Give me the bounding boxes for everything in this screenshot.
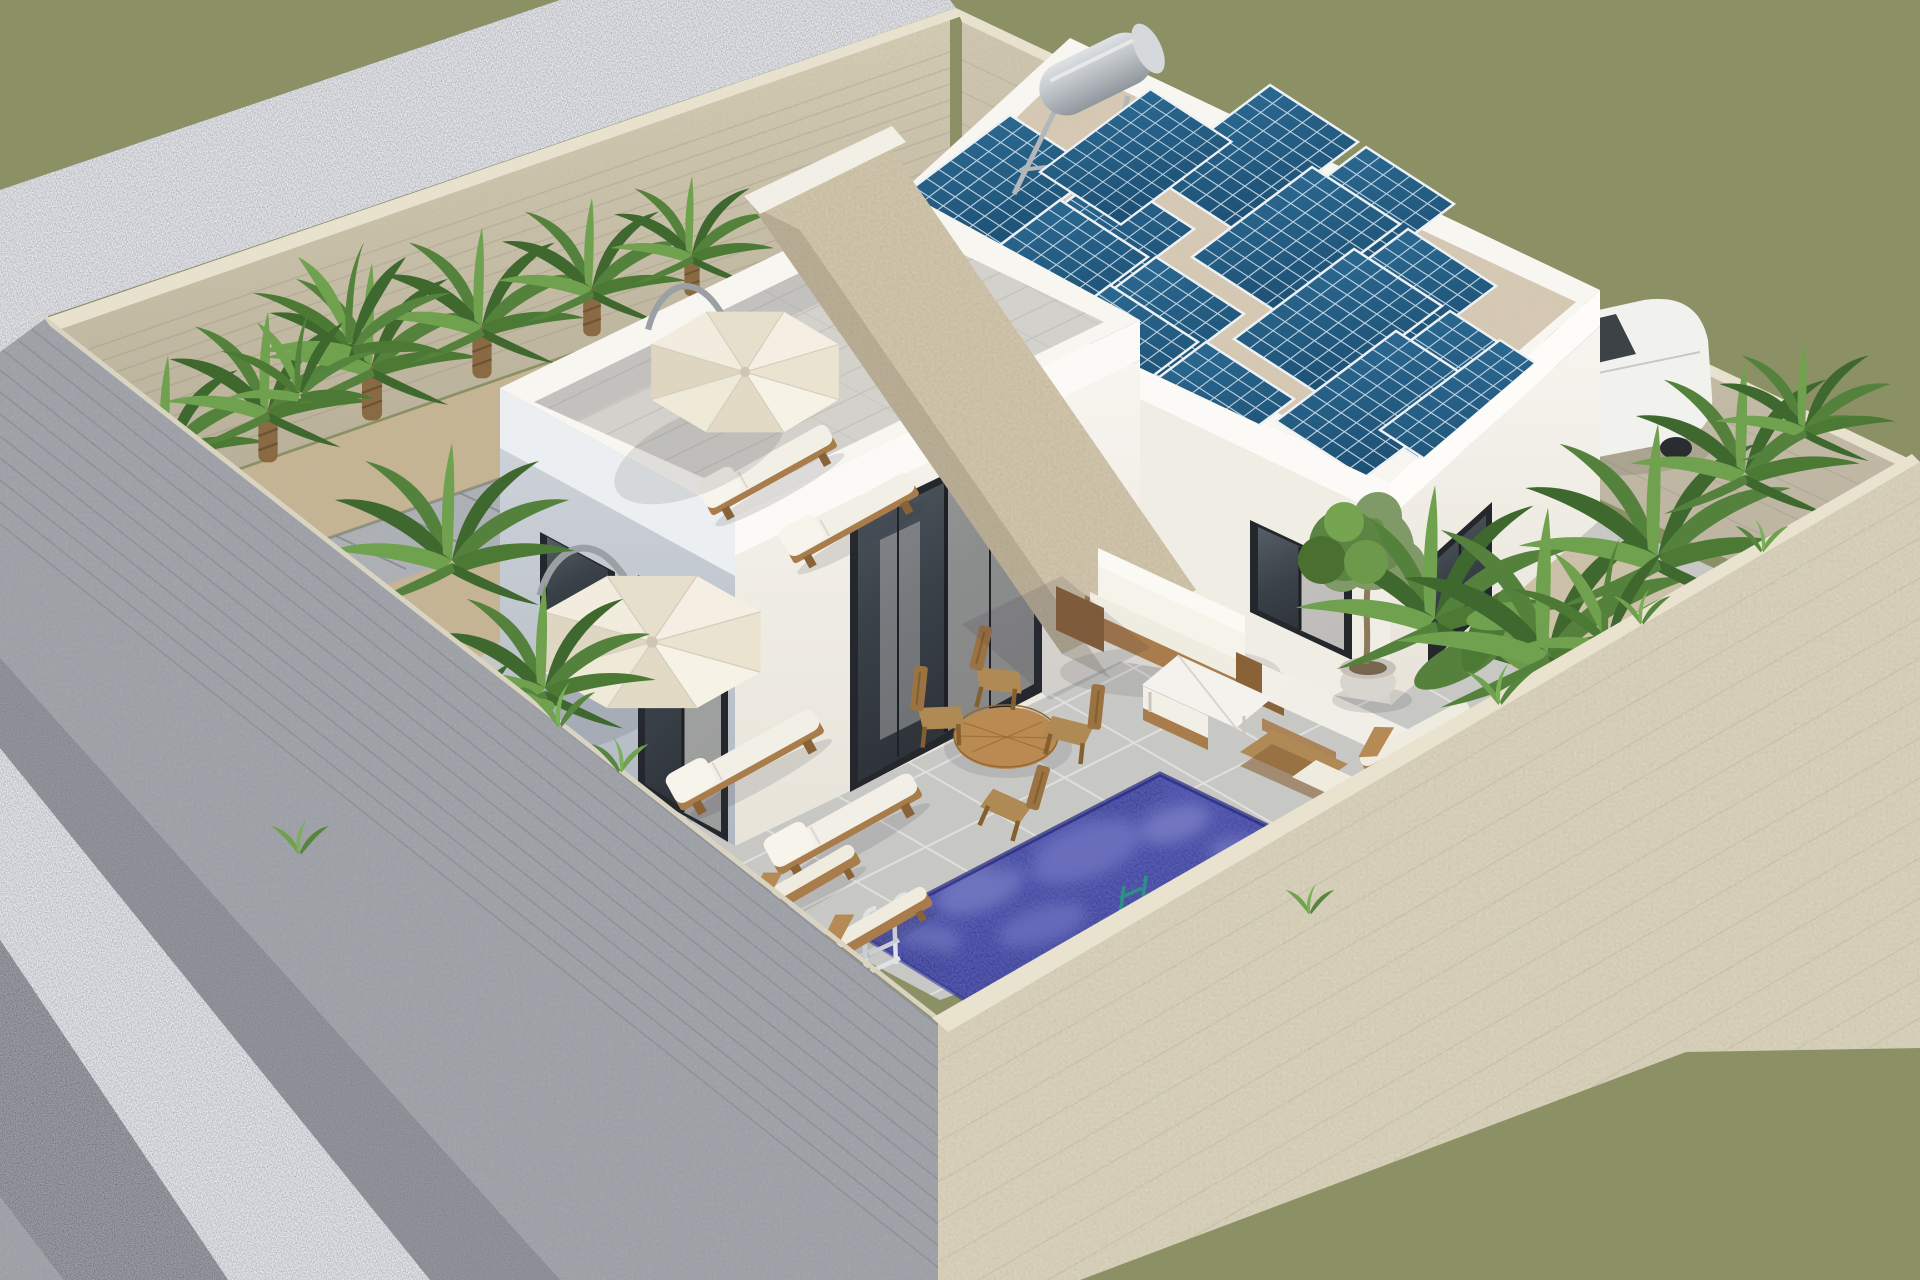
villa-render xyxy=(0,0,1920,1280)
